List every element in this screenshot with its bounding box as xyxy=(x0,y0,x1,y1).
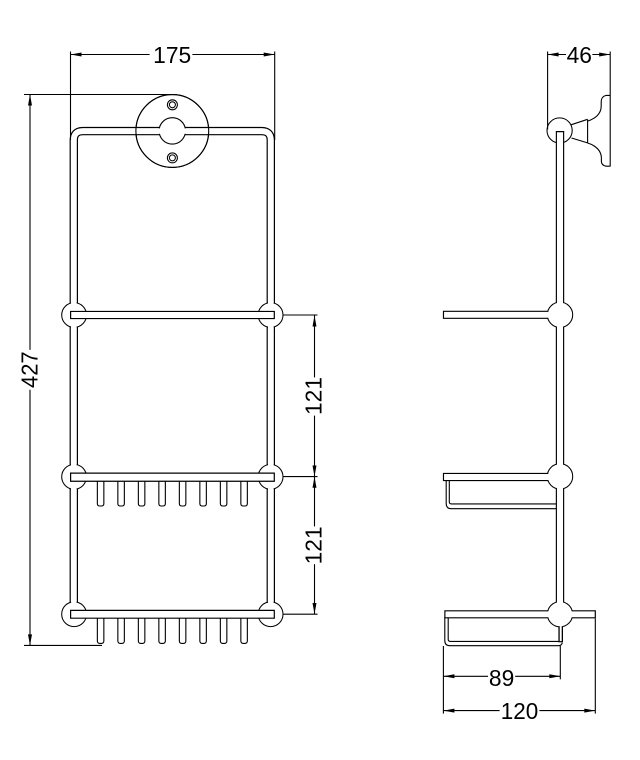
svg-text:175: 175 xyxy=(153,42,191,68)
svg-text:121: 121 xyxy=(300,526,326,564)
svg-text:120: 120 xyxy=(501,698,539,724)
svg-text:46: 46 xyxy=(567,42,592,68)
svg-text:427: 427 xyxy=(16,351,42,388)
svg-text:121: 121 xyxy=(300,377,326,415)
svg-text:89: 89 xyxy=(489,665,514,691)
